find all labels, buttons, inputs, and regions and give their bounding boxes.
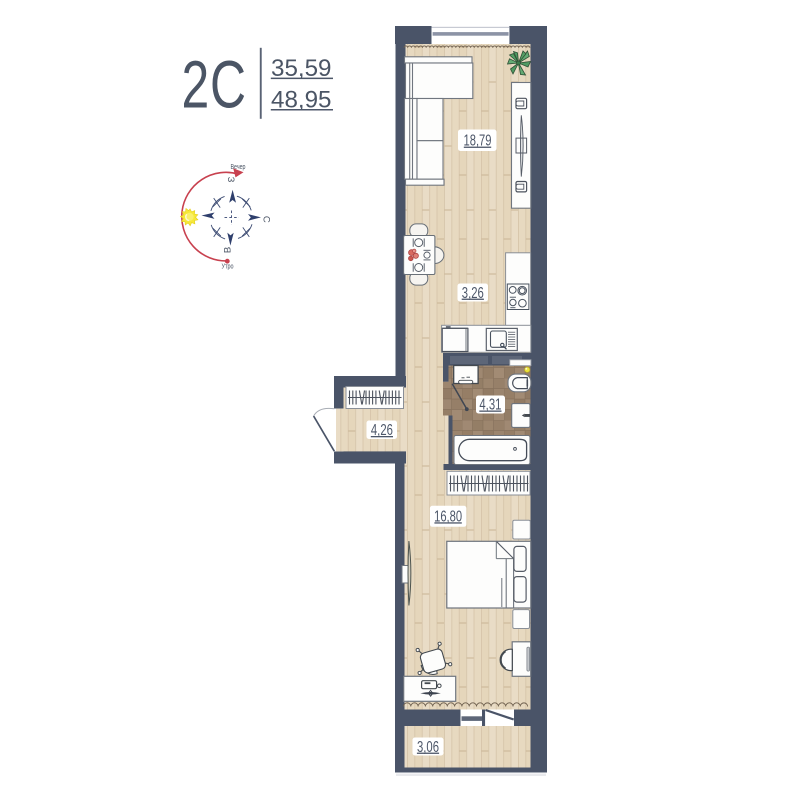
svg-text:С: С: [261, 216, 272, 223]
svg-text:2C: 2C: [182, 49, 247, 123]
svg-text:Вечер: Вечер: [231, 164, 246, 171]
svg-text:Утро: Утро: [222, 264, 234, 271]
svg-text:З: З: [225, 177, 236, 183]
svg-text:В: В: [223, 247, 234, 253]
